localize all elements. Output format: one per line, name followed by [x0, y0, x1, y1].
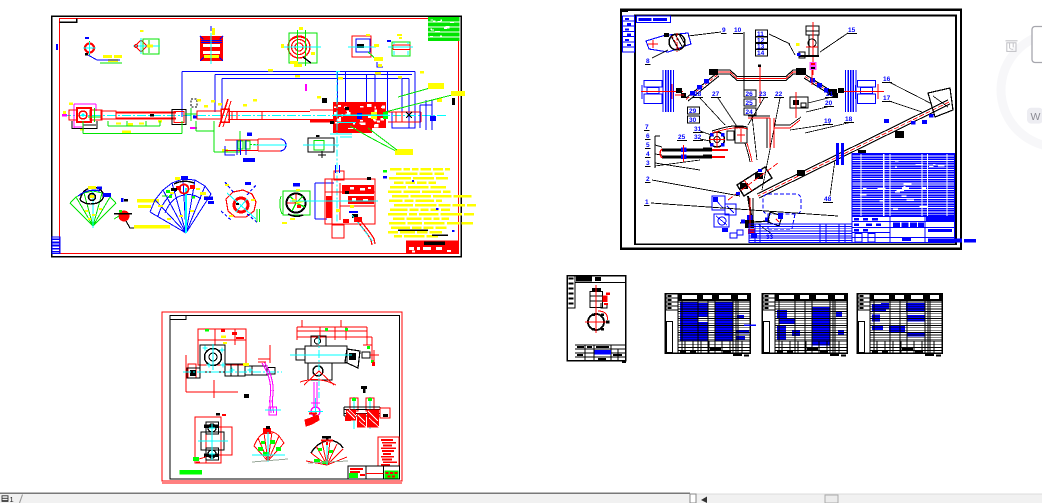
svg-text:29: 29 — [689, 108, 697, 115]
svg-text:W: W — [1031, 111, 1041, 123]
svg-text:14: 14 — [757, 50, 765, 57]
svg-text:24: 24 — [746, 109, 754, 116]
svg-text:25: 25 — [746, 100, 754, 107]
svg-text:1: 1 — [10, 495, 14, 503]
svg-text:30: 30 — [689, 117, 697, 124]
svg-text:26: 26 — [746, 91, 754, 98]
